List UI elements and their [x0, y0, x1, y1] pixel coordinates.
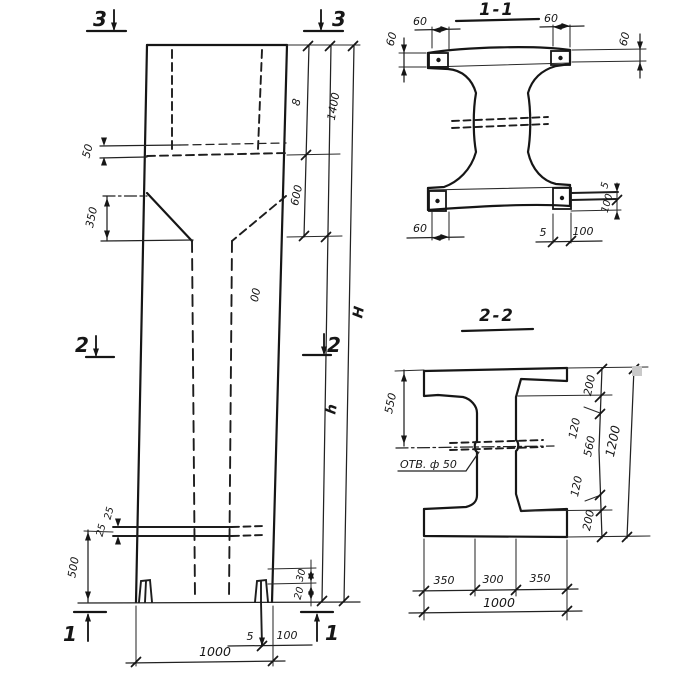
dim-5: 5 — [247, 630, 254, 643]
elevation-right-dimensions: 800 600 1400 h H 30 20 — [248, 42, 368, 607]
dim-100: 100 — [277, 629, 298, 642]
section-mark-3-left: 3 — [87, 7, 126, 31]
dim-350: 350 — [83, 206, 100, 229]
artifact-square — [632, 366, 642, 376]
dim-200-bottom: 200 — [580, 509, 597, 532]
elevation-view: 50 350 25 25 500 800 600 — [63, 7, 368, 667]
section-mark-1-left: 1 — [63, 612, 106, 646]
svg-text:1: 1 — [63, 622, 77, 646]
dim-120-bottom: 120 — [568, 475, 585, 498]
svg-text:2: 2 — [327, 333, 341, 357]
dim-1200: 1200 — [602, 424, 623, 458]
dim-1000: 1000 — [199, 644, 231, 659]
section-marks: 3 3 2 2 — [63, 7, 346, 646]
dim-200-top: 200 — [581, 374, 598, 397]
dim-25-upper: 25 — [103, 506, 117, 521]
svg-text:2: 2 — [75, 333, 89, 357]
section-mark-1-right: 1 — [301, 612, 339, 645]
dim-120-top: 120 — [566, 417, 583, 440]
dim-350-left: 350 — [434, 574, 455, 587]
section-2-2-right-dimensions: 200 120 560 120 200 1200 — [518, 365, 650, 542]
drawing-sheet: 50 350 25 25 500 800 600 — [0, 0, 700, 700]
dim-1400: 1400 — [325, 91, 343, 121]
dim-60-bottom: 60 — [413, 222, 427, 235]
dim-20: 20 — [293, 586, 307, 601]
dim-60-right: 60 — [617, 31, 633, 48]
drawing-canvas: 50 350 25 25 500 800 600 — [0, 0, 700, 700]
dim-H: H — [350, 305, 368, 320]
elevation-bottom-dimensions: 5 100 1000 — [126, 606, 312, 667]
section-2-2-outline — [396, 368, 567, 537]
section-2-2-bottom-dimensions: 350 300 350 1000 — [409, 539, 582, 620]
dim-5-right: 5 — [599, 181, 611, 190]
dim-60-top-left: 60 — [413, 15, 427, 28]
dim-100-right: 100 — [600, 193, 616, 214]
section-2-2-left-dimension: 550 — [382, 370, 424, 446]
dim-25-lower: 25 — [95, 523, 109, 538]
svg-text:3: 3 — [93, 7, 107, 31]
section-1-1-outline — [428, 47, 570, 210]
hole-callout: ОТВ. ф 50 — [398, 452, 479, 471]
hole-label: ОТВ. ф 50 — [400, 458, 457, 471]
dim-550: 550 — [382, 392, 399, 415]
dim-500: 500 — [65, 556, 81, 579]
svg-text:3: 3 — [332, 7, 346, 31]
dim-50: 50 — [80, 143, 96, 160]
dim-5-bottom: 5 — [540, 226, 547, 239]
dim-600: 600 — [288, 184, 305, 207]
section-2-2-title: 2-2 — [479, 306, 515, 325]
elevation-left-dimensions: 50 350 25 25 500 — [65, 138, 121, 603]
section-2-2-view: 2-2 ОТВ. ф 50 550 — [382, 306, 650, 620]
section-1-1-view: 1-1 — [384, 0, 646, 247]
section-1-1-title: 1-1 — [479, 0, 515, 19]
section-mark-2-right: 2 — [303, 333, 341, 357]
svg-text:1: 1 — [325, 621, 339, 645]
dim-560: 560 — [581, 435, 598, 458]
dim-h: h — [323, 403, 340, 416]
dim-300: 300 — [483, 573, 504, 586]
dim-60-left: 60 — [384, 31, 400, 48]
column-hidden-lines — [100, 50, 287, 598]
section-mark-3-right: 3 — [304, 7, 346, 31]
dim-350-right: 350 — [530, 572, 551, 585]
dim-60-top-right: 60 — [544, 12, 558, 25]
dim-100-bottom: 100 — [573, 225, 594, 238]
dim-1000-section: 1000 — [483, 595, 515, 610]
column-outline — [78, 45, 360, 646]
section-mark-2-left: 2 — [75, 333, 114, 357]
section-1-1-embed-plates — [429, 51, 621, 211]
dim-30: 30 — [295, 568, 309, 583]
